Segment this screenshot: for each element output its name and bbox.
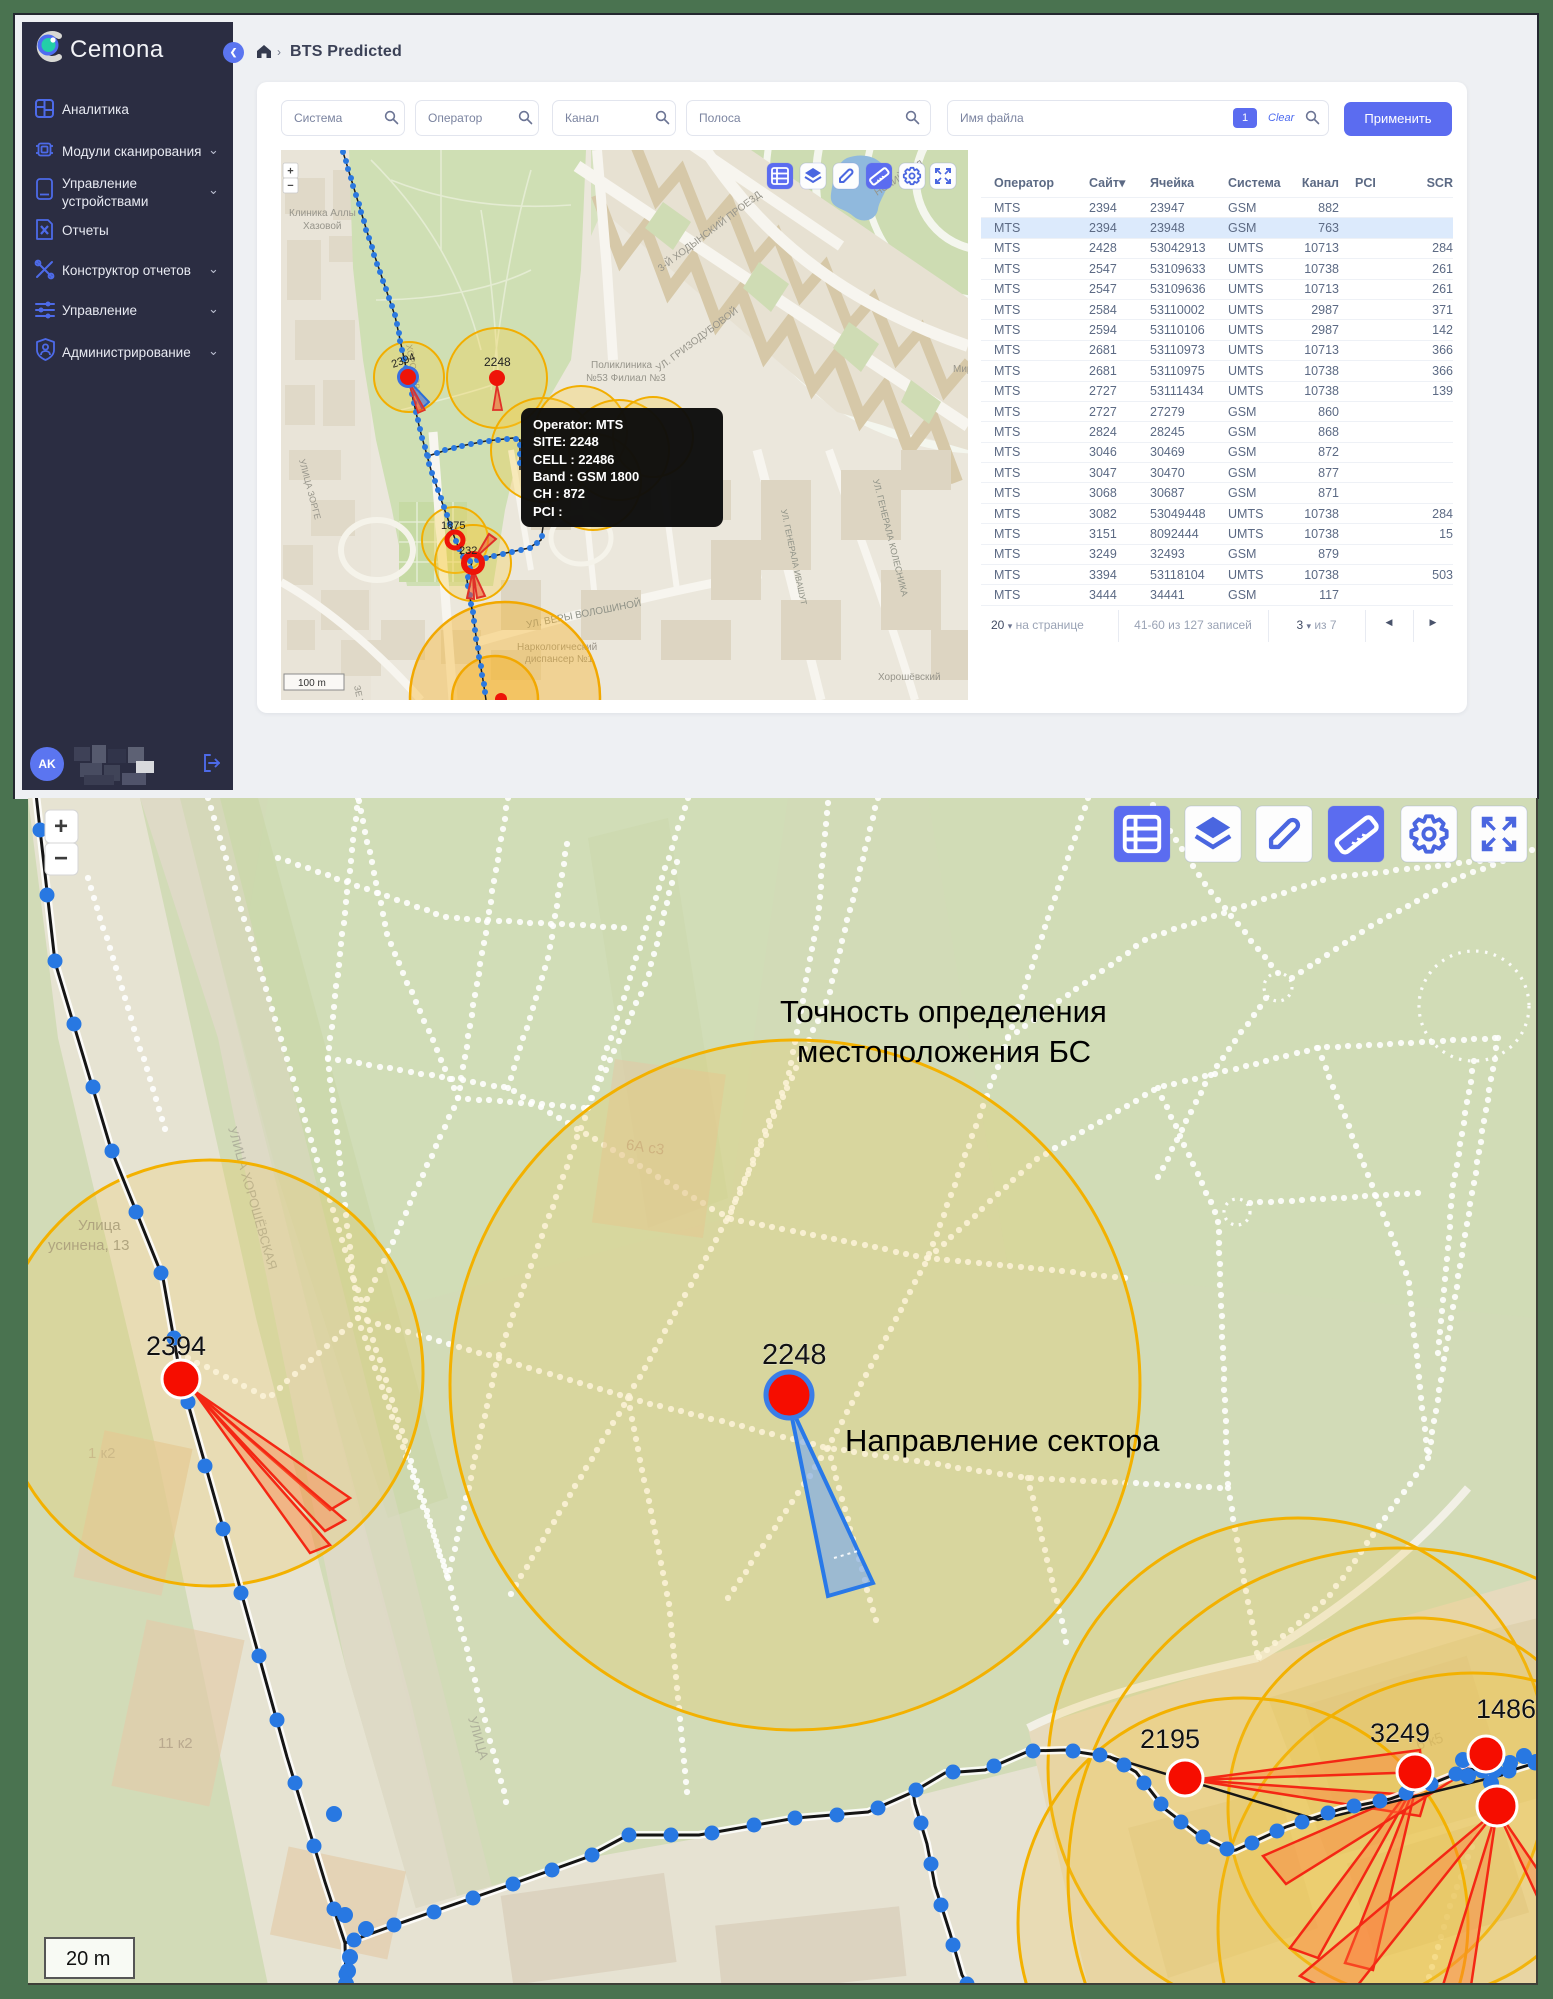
svg-text:местоположения БС: местоположения БС <box>797 1034 1091 1069</box>
svg-text:+: + <box>54 813 68 840</box>
svg-text:Мир: Мир <box>953 364 968 375</box>
svg-text:2394: 2394 <box>146 1331 206 1361</box>
svg-text:2195: 2195 <box>1140 1724 1200 1754</box>
svg-text:№53 Филиал №3: №53 Филиал №3 <box>586 373 666 384</box>
svg-text:2248: 2248 <box>762 1339 827 1371</box>
svg-text:Operator: MTS: Operator: MTS <box>533 417 624 432</box>
svg-text:2248: 2248 <box>484 355 511 369</box>
svg-text:Клиника Аллы: Клиника Аллы <box>289 208 356 219</box>
svg-text:Точность определения: Точность определения <box>780 994 1107 1029</box>
svg-text:20 m: 20 m <box>66 1948 110 1970</box>
svg-text:11 к2: 11 к2 <box>158 1735 193 1752</box>
svg-text:100 m: 100 m <box>298 678 326 689</box>
svg-text:Хазовой: Хазовой <box>303 221 342 232</box>
svg-text:1486: 1486 <box>1476 1694 1536 1724</box>
svg-text:+: + <box>287 166 293 178</box>
svg-text:232: 232 <box>459 545 477 557</box>
svg-text:Поликлиника: Поликлиника <box>591 360 653 371</box>
svg-text:CELL : 22486: CELL : 22486 <box>533 452 614 467</box>
svg-text:Band : GSM 1800: Band : GSM 1800 <box>533 469 639 484</box>
svg-text:Хорошёвский: Хорошёвский <box>878 672 941 683</box>
svg-text:3249: 3249 <box>1370 1718 1430 1748</box>
svg-text:SITE: 2248: SITE: 2248 <box>533 434 599 449</box>
svg-text:PCI :: PCI : <box>533 504 563 519</box>
svg-text:−: − <box>54 845 68 872</box>
svg-text:−: − <box>287 180 293 192</box>
svg-text:Направление сектора: Направление сектора <box>845 1423 1160 1458</box>
svg-text:1875: 1875 <box>441 520 465 532</box>
svg-text:CH : 872: CH : 872 <box>533 486 585 501</box>
